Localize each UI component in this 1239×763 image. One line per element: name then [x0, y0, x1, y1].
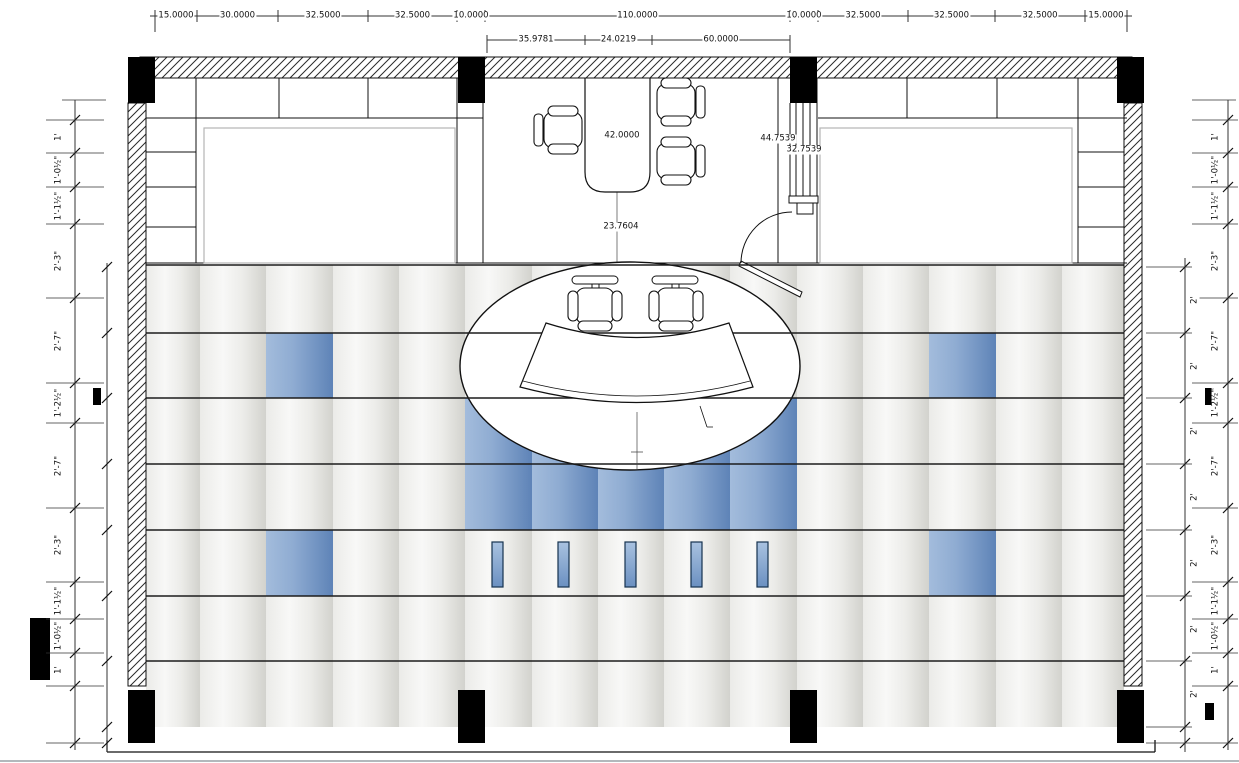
blue-tile — [266, 333, 333, 398]
dim-label: 2' — [1191, 689, 1200, 699]
floor-tile — [996, 596, 1062, 661]
dim-label: 32.5000 — [1021, 12, 1058, 21]
door-hinge — [797, 203, 813, 214]
dim-label: 2'-3" — [1212, 250, 1221, 272]
dim-label: 2' — [1191, 624, 1200, 634]
floor-tile — [200, 530, 266, 596]
floor-tile — [929, 596, 996, 661]
floor-tile — [1062, 464, 1124, 530]
floor-tile — [266, 464, 333, 530]
floor-tile — [532, 661, 598, 727]
section-marker — [30, 618, 50, 680]
floor-tile — [730, 596, 797, 661]
floor-tile — [1062, 530, 1124, 596]
dim-label: 24.0219 — [600, 36, 637, 45]
dim-label: 60.0000 — [702, 36, 739, 45]
dim-label: 2'-3" — [55, 250, 64, 272]
column — [458, 57, 485, 103]
dim-label: 2' — [1191, 361, 1200, 371]
reception-table-left — [572, 276, 618, 284]
blue-tile — [266, 530, 333, 596]
floor-tile — [1062, 596, 1124, 661]
floor-tile — [598, 596, 664, 661]
dim-label: 1'-2½" — [55, 388, 64, 418]
floor-tile — [863, 596, 929, 661]
floor-tile — [863, 464, 929, 530]
floor-tile — [266, 398, 333, 464]
floor-tile — [797, 333, 863, 398]
floor-tile — [200, 464, 266, 530]
dim-label: 15.0000 — [157, 12, 194, 21]
dim-label: 1'-0½" — [1212, 621, 1221, 651]
floor-tile — [797, 464, 863, 530]
floor-tile — [200, 333, 266, 398]
dim-label: 2'-3" — [1212, 534, 1221, 556]
floor-tile — [797, 596, 863, 661]
dim-label: 1' — [1212, 665, 1221, 675]
dim-label: 1'-0½" — [1212, 155, 1221, 185]
dim-label: 1'-1½" — [55, 585, 64, 615]
dim-label: 110.0000 — [616, 12, 659, 21]
floor-tile — [399, 530, 465, 596]
floor-tile — [1062, 398, 1124, 464]
floor-tile — [146, 265, 200, 333]
floor-tile — [996, 464, 1062, 530]
dim-label: 2' — [1191, 558, 1200, 568]
floor-tile — [399, 464, 465, 530]
door-frame — [790, 78, 817, 263]
dim-label: 1'-0½" — [55, 621, 64, 651]
blue-tile — [465, 464, 532, 530]
floor-tile — [929, 265, 996, 333]
floor-tile — [1062, 265, 1124, 333]
floor-tile — [266, 596, 333, 661]
floor-tile — [266, 661, 333, 727]
floor-plan-svg — [0, 0, 1239, 763]
floor-tile — [200, 265, 266, 333]
door-swing-arc — [741, 212, 792, 263]
dim-label: 1'-1½" — [1212, 585, 1221, 615]
annotation-door-a: 44.7539 — [759, 135, 796, 144]
dim-label: 1' — [55, 665, 64, 675]
dim-label: 2'-3" — [55, 534, 64, 556]
floor-tile — [465, 596, 532, 661]
floor-tile — [730, 661, 797, 727]
blue-tile — [730, 464, 797, 530]
left-room-inset — [204, 128, 455, 263]
floor-tile — [996, 333, 1062, 398]
floor-tile — [200, 398, 266, 464]
dim-label: 1'-0½" — [55, 155, 64, 185]
blue-bar — [625, 542, 636, 587]
dim-label: 1'-1½" — [1212, 190, 1221, 220]
floor-tile — [664, 661, 730, 727]
right-room-inset — [820, 128, 1072, 263]
floor-tile — [333, 333, 399, 398]
column — [128, 690, 155, 743]
floor-tile — [797, 530, 863, 596]
dim-label: 10.0000 — [452, 12, 489, 21]
right-wall — [1124, 103, 1142, 686]
floor-tile — [797, 265, 863, 333]
floor-tile — [929, 464, 996, 530]
floor-tile — [266, 265, 333, 333]
middle-office — [483, 78, 778, 263]
floor-tile — [863, 265, 929, 333]
floor-tile — [996, 530, 1062, 596]
floor-tile — [399, 333, 465, 398]
column — [1117, 57, 1144, 103]
blue-bar — [558, 542, 569, 587]
dim-label: 15.0000 — [1087, 12, 1124, 21]
floor-tile — [929, 398, 996, 464]
column — [458, 690, 485, 743]
floor-tile — [399, 265, 465, 333]
floor-plan-canvas: 42.0000 23.7604 44.7539 32.7539 15.00003… — [0, 0, 1239, 763]
top-wall — [140, 57, 1132, 78]
floor-tile — [929, 661, 996, 727]
dim-label: 2'-7" — [55, 454, 64, 476]
floor-tile — [532, 596, 598, 661]
floor-tile — [333, 398, 399, 464]
dim-label: 32.5000 — [304, 12, 341, 21]
column — [1117, 690, 1144, 743]
floor-tile — [333, 596, 399, 661]
floor-tile — [200, 596, 266, 661]
dim-label: 10.0000 — [785, 12, 822, 21]
dim-label: 2' — [1191, 295, 1200, 305]
building-base-line — [107, 740, 1155, 752]
floor-tile — [200, 661, 266, 727]
floor-tile — [333, 464, 399, 530]
blue-bar — [691, 542, 702, 587]
floor-tile — [863, 333, 929, 398]
floor-tile — [146, 398, 200, 464]
door-sill — [789, 196, 818, 203]
annotation-door-b: 32.7539 — [785, 146, 822, 155]
floor-tile — [146, 530, 200, 596]
dim-label: 35.9781 — [517, 36, 554, 45]
dim-label: 32.5000 — [933, 12, 970, 21]
floor-tile — [598, 661, 664, 727]
dim-label: 1'-1½" — [55, 190, 64, 220]
dim-label: 2'-7" — [55, 329, 64, 351]
reception-table-right — [652, 276, 698, 284]
blue-tile — [664, 464, 730, 530]
floor-tile — [863, 398, 929, 464]
dim-label: 2' — [1191, 426, 1200, 436]
dim-label: 1'-2½" — [1212, 388, 1221, 418]
section-marker — [1205, 703, 1214, 720]
blue-tile — [929, 530, 996, 596]
dim-label: 2'-7" — [1212, 329, 1221, 351]
floor-tile — [797, 398, 863, 464]
dim-label: 32.5000 — [394, 12, 431, 21]
base-lines — [0, 740, 1239, 761]
blue-tile — [532, 464, 598, 530]
floor-tile — [146, 596, 200, 661]
floor-tile — [399, 398, 465, 464]
floor-tile — [996, 661, 1062, 727]
office-chair — [534, 106, 582, 154]
column — [790, 57, 817, 103]
column — [128, 57, 155, 103]
floor-tile — [996, 265, 1062, 333]
floor-tile — [863, 530, 929, 596]
column — [790, 690, 817, 743]
floor-tile — [399, 661, 465, 727]
section-marker — [93, 388, 101, 405]
blue-bar — [492, 542, 503, 587]
floor-tile — [146, 464, 200, 530]
dim-label: 1' — [55, 132, 64, 142]
annotation-desk-width: 42.0000 — [603, 132, 640, 141]
blue-tile — [929, 333, 996, 398]
floor-tile — [146, 333, 200, 398]
blue-tile — [598, 464, 664, 530]
floor-tile — [333, 265, 399, 333]
floor-tile — [664, 596, 730, 661]
annotation-desk-clearance: 23.7604 — [602, 223, 639, 232]
floor-tile — [333, 661, 399, 727]
left-wall — [128, 103, 146, 686]
office-chair — [657, 78, 705, 126]
blue-bar — [757, 542, 768, 587]
dim-label: 2'-7" — [1212, 454, 1221, 476]
floor-tile — [333, 530, 399, 596]
dim-label: 1' — [1212, 132, 1221, 142]
dim-label: 2' — [1191, 492, 1200, 502]
dim-label: 30.0000 — [219, 12, 256, 21]
floor-tile — [399, 596, 465, 661]
dim-label: 32.5000 — [844, 12, 881, 21]
floor-tile — [1062, 333, 1124, 398]
floor-tile — [996, 398, 1062, 464]
floor-tile — [863, 661, 929, 727]
floor-tile — [1062, 661, 1124, 727]
office-chair — [657, 137, 705, 185]
